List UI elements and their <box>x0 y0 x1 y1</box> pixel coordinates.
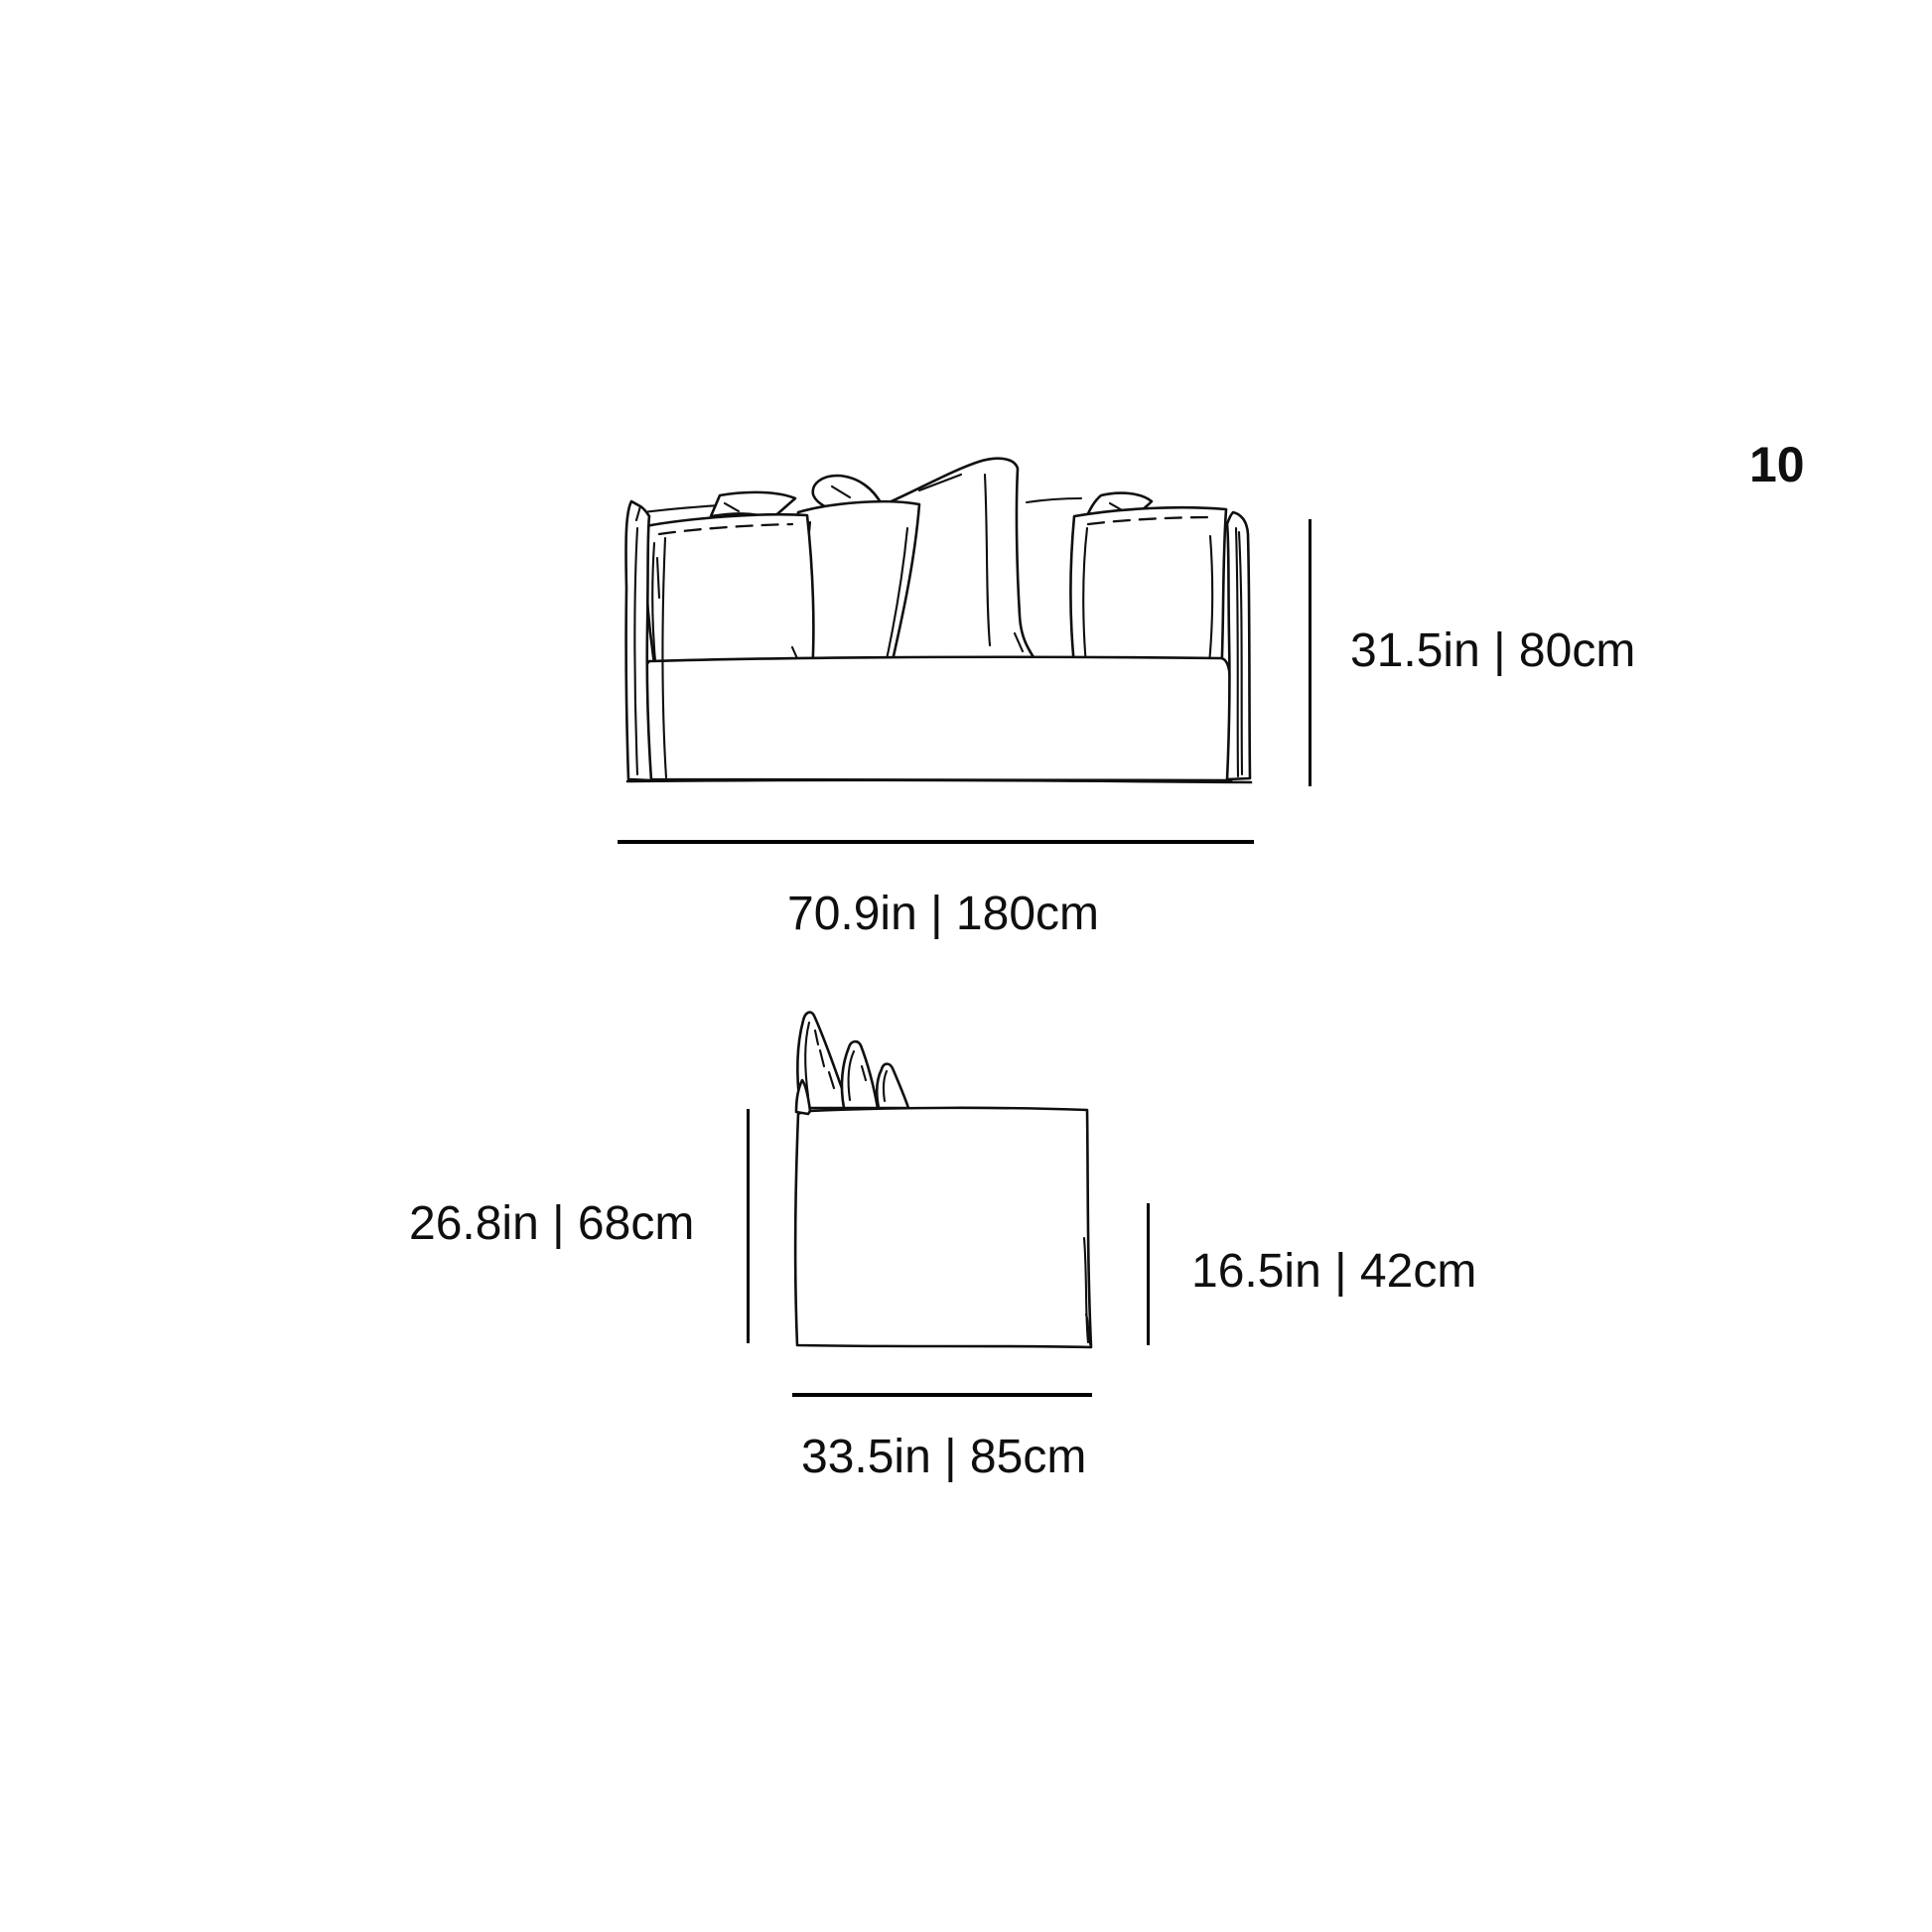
side-back-height-label: 26.8in | 68cm <box>409 1200 694 1248</box>
bottom-hem <box>627 780 1251 782</box>
spec-sheet-page: 10 <box>0 0 1932 1932</box>
front-height-label: 31.5in | 80cm <box>1350 627 1635 675</box>
side-seat-height-dimension-line <box>1147 1203 1150 1345</box>
pillow-tip-2 <box>842 1041 878 1108</box>
seat-base <box>643 657 1231 780</box>
pillow-tip-3 <box>877 1064 908 1108</box>
side-body <box>795 1080 1091 1347</box>
front-height-dimension-line <box>1309 519 1311 786</box>
side-seat-height-label: 16.5in | 42cm <box>1191 1248 1476 1296</box>
front-width-label: 70.9in | 180cm <box>787 891 1099 938</box>
front-width-dimension-line <box>618 840 1254 844</box>
sofa-side-drawing <box>784 1005 1100 1354</box>
sofa-front-drawing <box>621 449 1255 790</box>
side-depth-dimension-line <box>792 1393 1092 1397</box>
side-depth-label: 33.5in | 85cm <box>801 1434 1086 1481</box>
right-arm-drape <box>1227 512 1250 779</box>
side-back-height-dimension-line <box>747 1109 750 1343</box>
page-number: 10 <box>1749 440 1805 489</box>
